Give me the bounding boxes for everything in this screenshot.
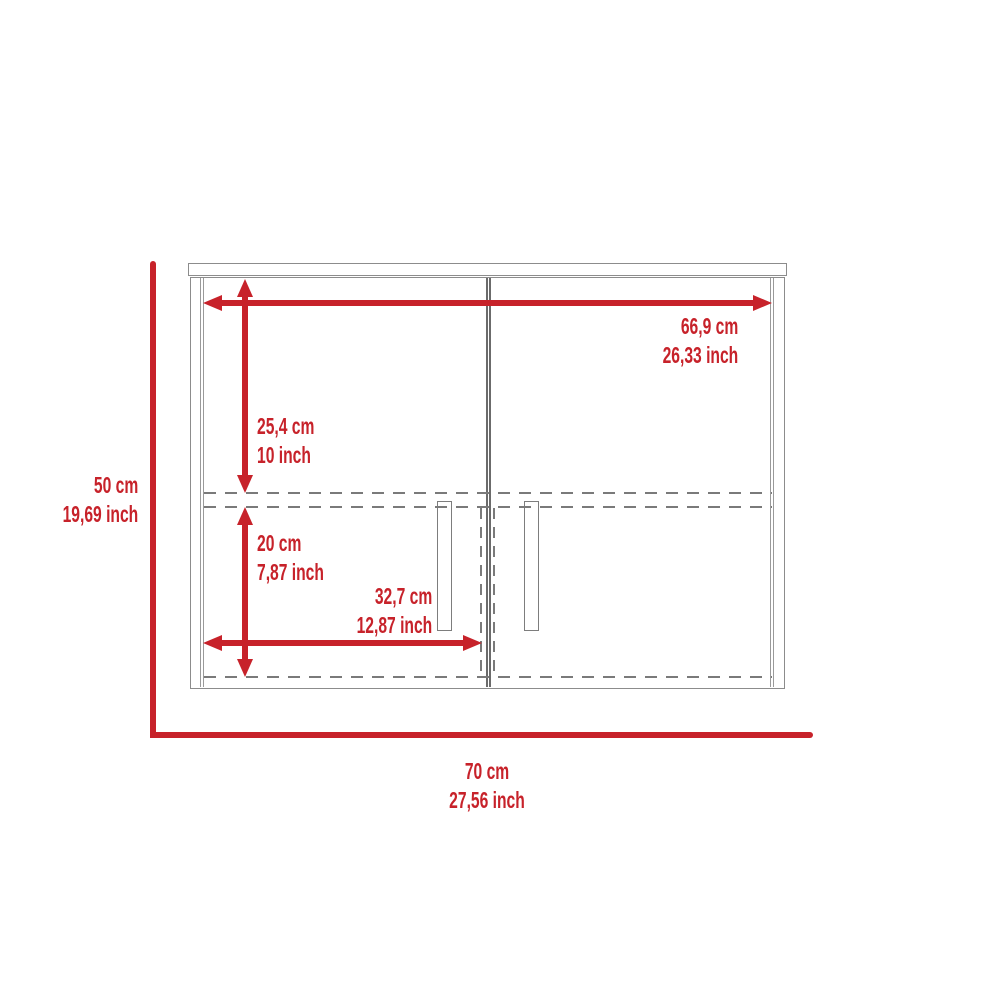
arrowhead-up-icon xyxy=(237,507,253,525)
arrowhead-left-icon xyxy=(203,295,222,311)
dim-overall-width-label: 70 cm 27,56 inch xyxy=(385,757,589,815)
arrowhead-left-icon xyxy=(203,635,222,651)
dim-value-cm: 70 cm xyxy=(385,757,589,786)
cabinet-dimension-diagram: 66,9 cm 26,33 inch 25,4 cm 10 inch 20 cm… xyxy=(0,0,1000,1000)
arrowhead-up-icon xyxy=(237,279,253,297)
dim-value-inch: 27,56 inch xyxy=(385,786,589,815)
arrowhead-right-icon xyxy=(463,635,482,651)
dim-value-cm: 66,9 cm xyxy=(662,312,738,341)
cabinet-center-divider xyxy=(486,278,491,687)
dim-lower-section-label: 20 cm 7,87 inch xyxy=(257,529,324,587)
arrowhead-right-icon xyxy=(753,295,772,311)
dim-value-cm: 32,7 cm xyxy=(356,582,432,611)
dim-value-inch: 10 inch xyxy=(257,441,314,470)
shelf-dashed-line-lower xyxy=(204,506,772,508)
overall-height-line xyxy=(150,261,156,735)
center-dashed-line-left xyxy=(480,508,482,678)
overall-width-line xyxy=(150,732,813,738)
dim-inner-width-label: 66,9 cm 26,33 inch xyxy=(662,312,738,370)
dim-value-inch: 19,69 inch xyxy=(62,500,138,529)
arrowhead-down-icon xyxy=(237,659,253,677)
center-dashed-line-right xyxy=(493,508,495,678)
dim-value-inch: 12,87 inch xyxy=(356,611,432,640)
bottom-dashed-line xyxy=(204,676,772,678)
left-door-handle xyxy=(437,501,452,631)
dim-upper-section-line xyxy=(242,296,248,476)
right-door-edge-line xyxy=(770,278,774,687)
dim-inner-width-line xyxy=(220,300,754,306)
cabinet-top-board xyxy=(188,263,787,276)
dim-door-width-label: 32,7 cm 12,87 inch xyxy=(356,582,432,640)
left-door-edge-line xyxy=(200,278,204,687)
dim-door-width-line xyxy=(220,640,464,646)
shelf-dashed-line-upper xyxy=(204,492,772,494)
dim-value-cm: 50 cm xyxy=(62,471,138,500)
dim-value-inch: 26,33 inch xyxy=(662,341,738,370)
dim-upper-section-label: 25,4 cm 10 inch xyxy=(257,412,314,470)
right-door-handle xyxy=(524,501,539,631)
dim-value-cm: 25,4 cm xyxy=(257,412,314,441)
dim-value-cm: 20 cm xyxy=(257,529,324,558)
arrowhead-down-icon xyxy=(237,475,253,493)
dim-overall-height-label: 50 cm 19,69 inch xyxy=(62,471,138,529)
dim-value-inch: 7,87 inch xyxy=(257,558,324,587)
